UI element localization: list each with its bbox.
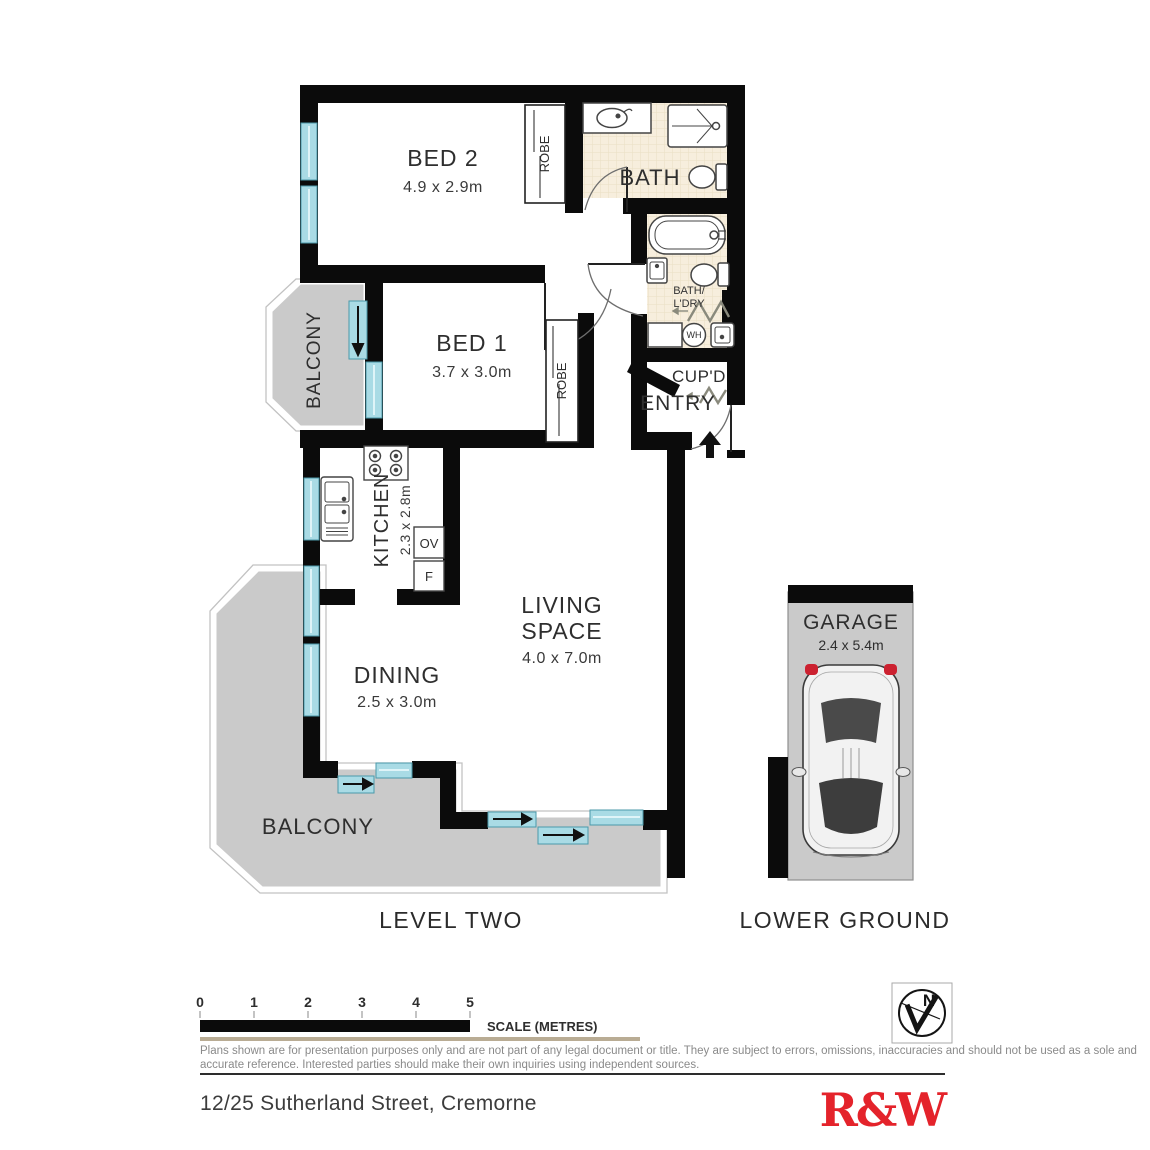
bath-label: BATH (619, 165, 680, 190)
bed2-dims: 4.9 x 2.9m (403, 179, 483, 196)
taillight-right-icon (884, 664, 897, 675)
entry-label: ENTRY (640, 392, 716, 415)
rw-brand-logo: R&W (820, 1083, 949, 1137)
dining-label: DINING (354, 662, 441, 688)
balcony-lower-label: BALCONY (262, 814, 374, 839)
balcony-upper-label: BALCONY (304, 311, 325, 409)
fridge-label: F (425, 569, 433, 584)
level-two-title: LEVEL TWO (379, 907, 523, 933)
scale-tick-3: 3 (358, 994, 366, 1010)
bed2-label: BED 2 (407, 145, 478, 171)
north-arrow-icon: N (892, 983, 952, 1043)
disclaimer-line-2: accurate reference. Interested parties s… (200, 1059, 699, 1071)
scale-tick-1: 1 (250, 994, 258, 1010)
living-label-1: LIVING (521, 592, 602, 618)
garage-label: GARAGE (803, 611, 899, 634)
taillight-left-icon (805, 664, 818, 675)
cupboard-label: CUP'D (672, 367, 726, 386)
bath-laundry-label-2: L'DRY (673, 298, 705, 310)
car-icon (792, 664, 910, 857)
address-text: 12/25 Sutherland Street, Cremorne (200, 1092, 537, 1115)
water-heater-label: WH (687, 330, 702, 340)
bed1-dims: 3.7 x 3.0m (432, 364, 512, 381)
garage-dims: 2.4 x 5.4m (818, 637, 883, 653)
scale-units-label: SCALE (METRES) (487, 1019, 598, 1034)
living-dims: 4.0 x 7.0m (522, 650, 602, 667)
compass-n-label: N (923, 991, 935, 1010)
living-label-2: SPACE (521, 618, 602, 644)
robe-bed2-label: ROBE (537, 135, 552, 172)
floor-plan-page: BED 2 4.9 x 2.9m BED 1 3.7 x 3.0m BATH B… (0, 0, 1150, 1150)
scale-tick-0: 0 (196, 994, 204, 1010)
dining-dims: 2.5 x 3.0m (357, 694, 437, 711)
bath-laundry-label-1: BATH/ (673, 285, 706, 297)
lower-ground-title: LOWER GROUND (740, 907, 951, 933)
scale-tick-4: 4 (412, 994, 420, 1010)
scale-tick-5: 5 (466, 994, 474, 1010)
kitchen-dims: 2.3 x 2.8m (397, 485, 413, 555)
kitchen-label: KITCHEN (371, 473, 393, 568)
bed1-label: BED 1 (436, 330, 507, 356)
oven-label: OV (420, 536, 439, 551)
floor-plan-svg: BED 2 4.9 x 2.9m BED 1 3.7 x 3.0m BATH B… (0, 0, 1150, 1150)
disclaimer-line-1: Plans shown are for presentation purpose… (200, 1045, 1137, 1057)
robe-bed1-label: ROBE (554, 362, 569, 399)
scale-tick-2: 2 (304, 994, 312, 1010)
